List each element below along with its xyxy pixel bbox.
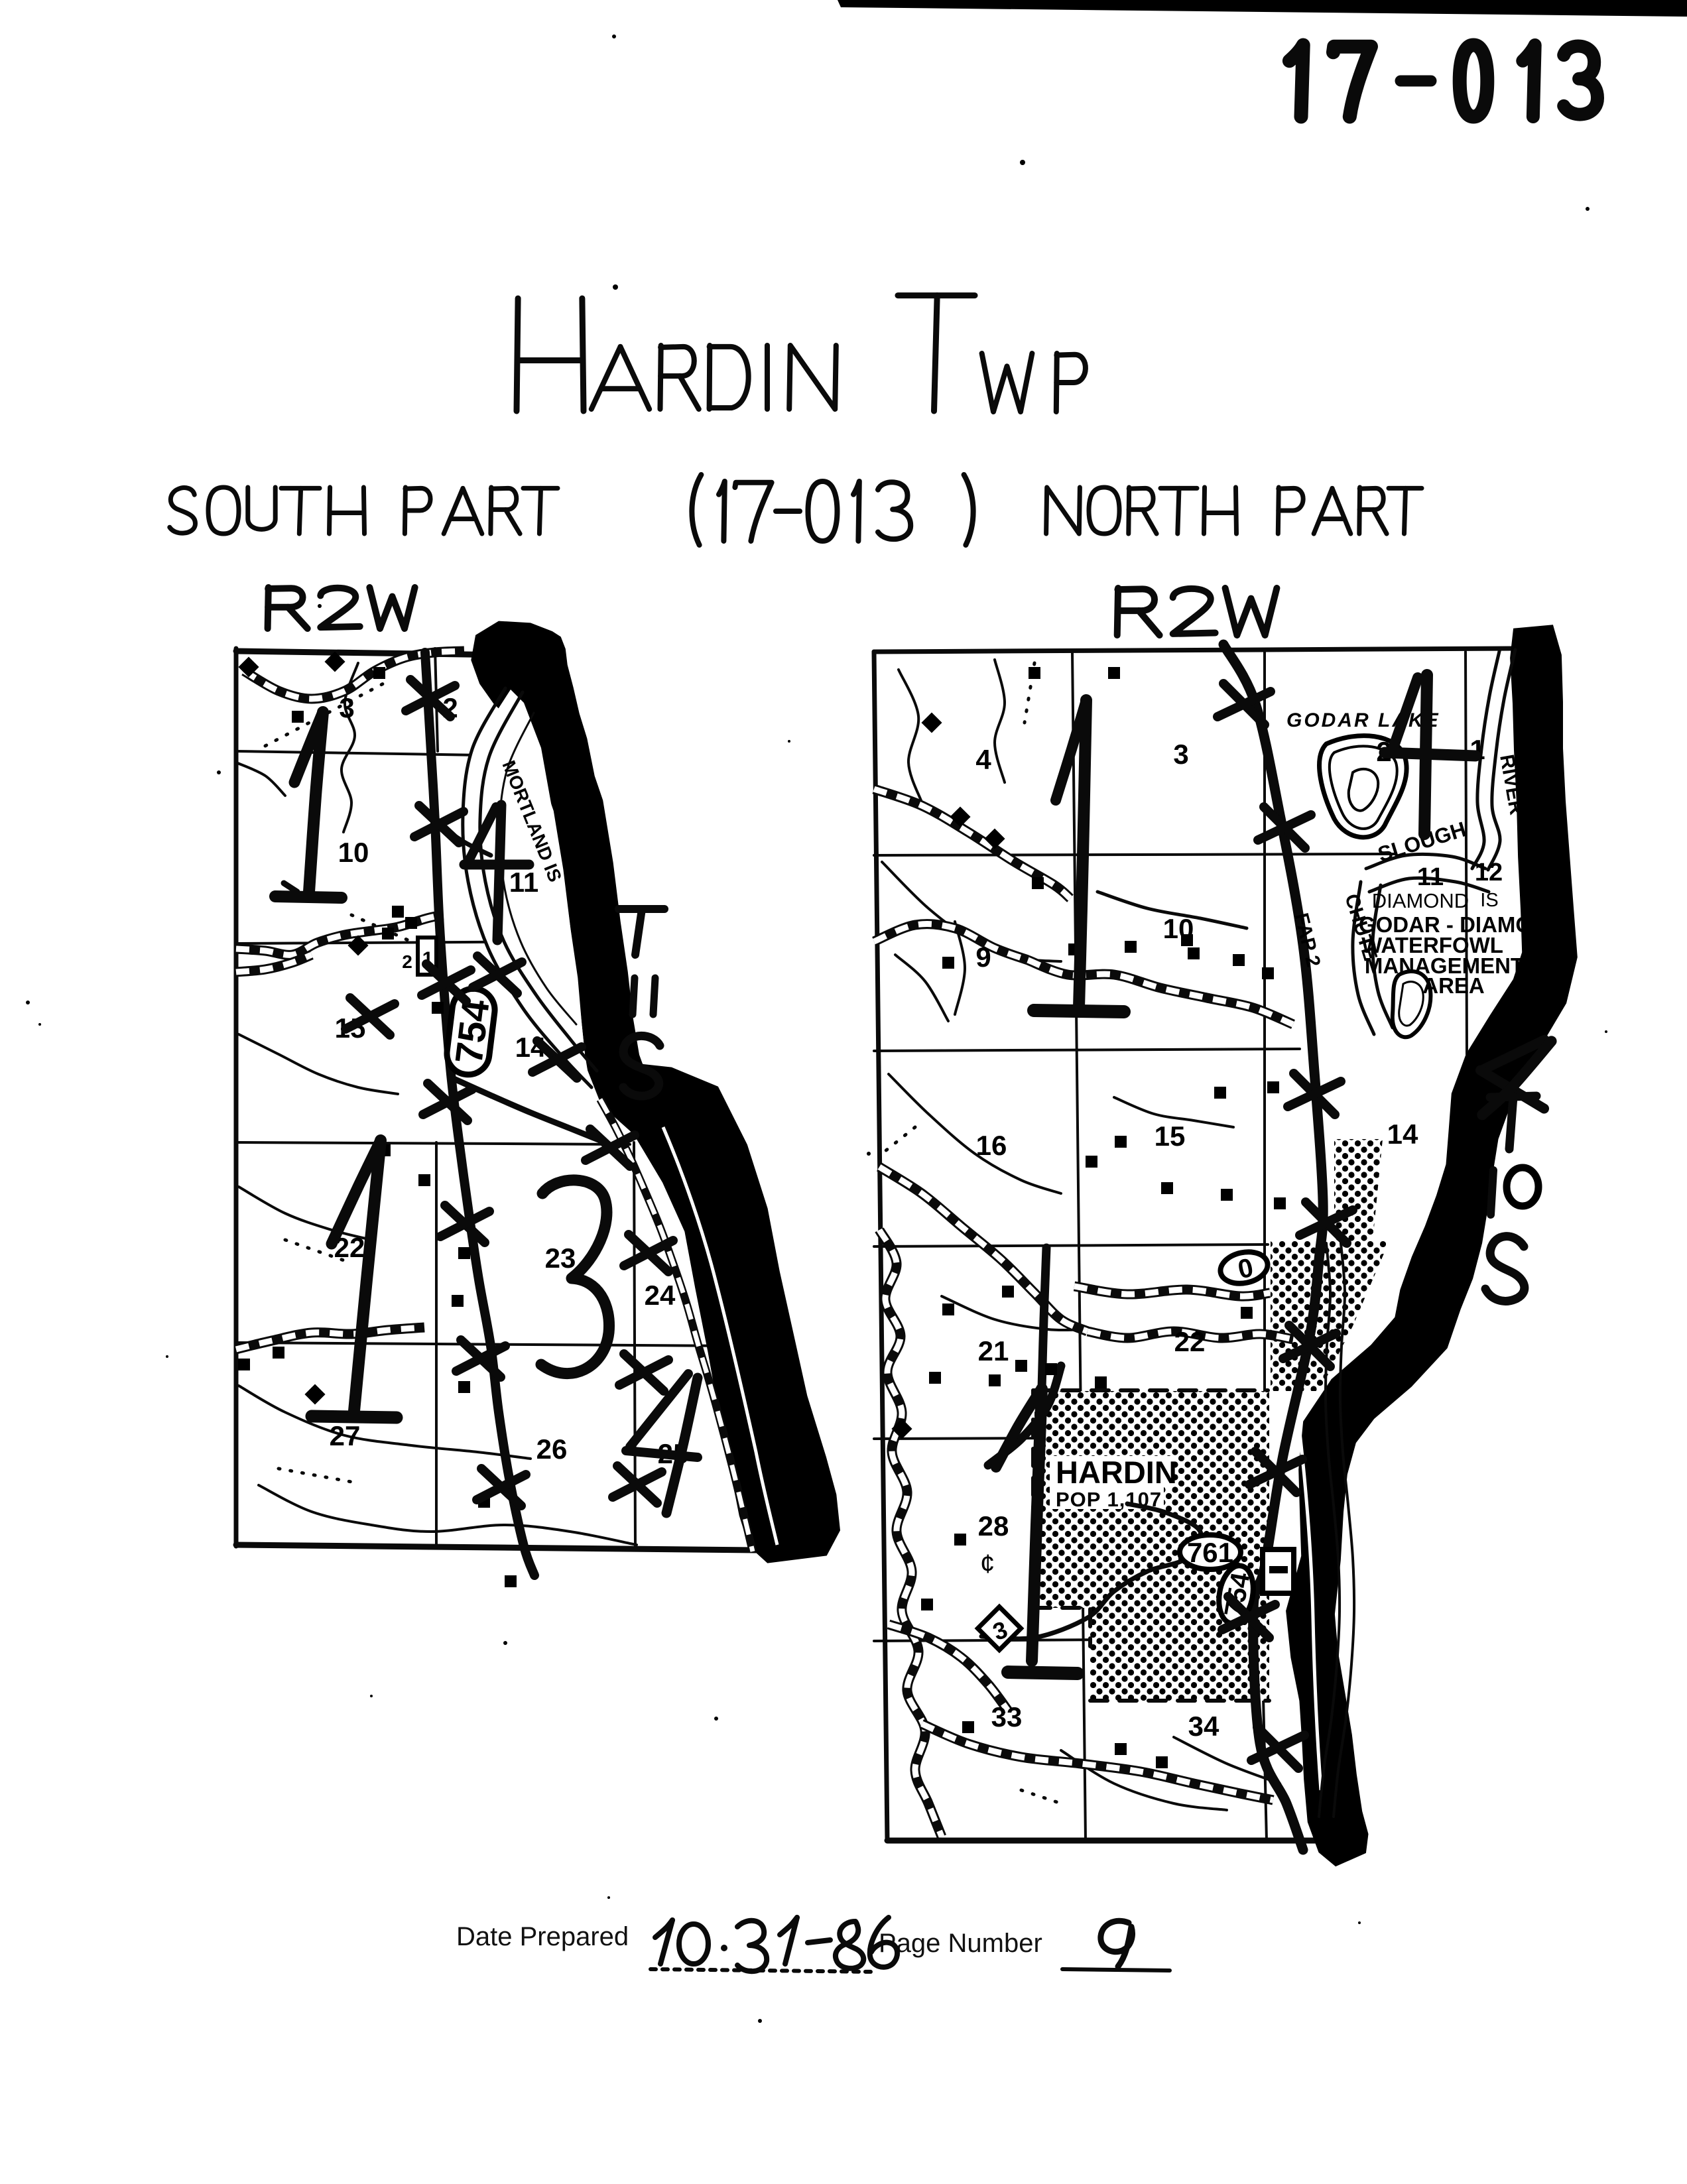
- svg-text:33: 33: [991, 1701, 1023, 1732]
- svg-text:4: 4: [975, 744, 991, 775]
- svg-text:761: 761: [1187, 1537, 1233, 1568]
- svg-text:¢: ¢: [980, 1549, 995, 1579]
- svg-text:34: 34: [1188, 1711, 1219, 1742]
- svg-text:23: 23: [545, 1243, 576, 1274]
- svg-text:10: 10: [338, 837, 369, 868]
- svg-text:3: 3: [339, 692, 354, 723]
- svg-text:DIAMOND: DIAMOND: [1372, 889, 1469, 912]
- svg-text:11: 11: [509, 867, 538, 898]
- svg-text:GODAR LAKE: GODAR LAKE: [1286, 709, 1440, 731]
- svg-text:26: 26: [536, 1433, 568, 1465]
- svg-text:28: 28: [978, 1510, 1009, 1542]
- svg-text:754: 754: [447, 997, 497, 1066]
- svg-text:2: 2: [402, 951, 412, 972]
- svg-text:3: 3: [1173, 739, 1188, 770]
- svg-text:Date Prepared: Date Prepared: [456, 1922, 629, 1951]
- svg-text:27: 27: [330, 1420, 361, 1451]
- svg-text:AREA: AREA: [1422, 973, 1485, 998]
- svg-text:14: 14: [1387, 1119, 1418, 1150]
- svg-text:9: 9: [975, 941, 991, 973]
- svg-text:12: 12: [1475, 859, 1503, 886]
- svg-text:11: 11: [1417, 863, 1444, 891]
- svg-text:24: 24: [645, 1280, 676, 1311]
- svg-text:21: 21: [978, 1335, 1009, 1366]
- svg-text:Page Number: Page Number: [879, 1929, 1042, 1958]
- svg-text:15: 15: [1155, 1121, 1186, 1152]
- svg-text:16: 16: [976, 1130, 1007, 1161]
- svg-text:IS: IS: [1480, 890, 1498, 911]
- svg-text:22: 22: [1174, 1326, 1206, 1357]
- svg-text:HARDIN: HARDIN: [1056, 1455, 1177, 1490]
